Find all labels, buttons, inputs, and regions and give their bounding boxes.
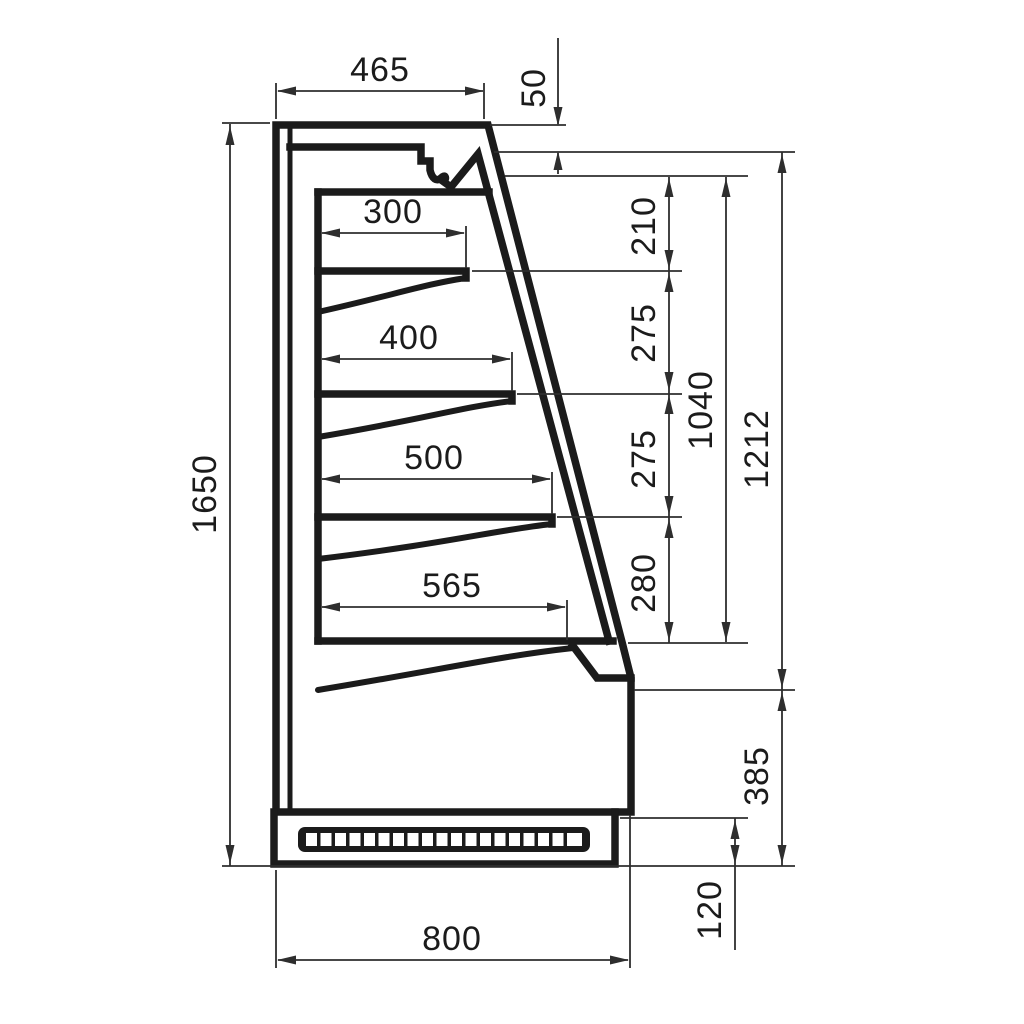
dim-spacing-3-label: 275 — [625, 429, 663, 489]
dim-base-shelf-label: 565 — [422, 567, 482, 605]
dim-shelf-1: 300 — [321, 193, 465, 238]
dim-total-height-label: 1650 — [186, 454, 224, 534]
dim-shelf-2-label: 400 — [379, 319, 439, 357]
dim-total-depth: 800 — [277, 920, 629, 965]
dim-opening-height: 1040 — [682, 177, 731, 642]
shelf-1 — [318, 271, 466, 278]
dim-total-depth-label: 800 — [422, 920, 482, 958]
dim-spacing-chain: 210 275 275 280 — [625, 177, 674, 643]
dim-front-label: 1212 — [738, 409, 776, 489]
dim-shelf-3: 500 — [321, 439, 551, 484]
shelf-3 — [318, 517, 552, 524]
dim-opening-label: 1040 — [682, 370, 720, 450]
dim-plinth-label: 120 — [691, 880, 729, 940]
dim-front-height: 1212 385 — [738, 152, 787, 866]
ventilation-grille — [298, 827, 590, 852]
dim-plinth-height: 120 — [691, 818, 740, 950]
dim-spacing-1-label: 210 — [625, 196, 663, 256]
shelf-3-underside — [318, 524, 552, 559]
cabinet-cross-section-drawing: 465 50 300 400 500 — [0, 0, 1024, 1024]
dim-shelf-2: 400 — [321, 319, 511, 364]
dim-spacing-2-label: 275 — [625, 303, 663, 363]
dim-shelf-1-label: 300 — [363, 193, 423, 231]
deck-underside — [318, 648, 573, 690]
technical-drawing-page: 465 50 300 400 500 — [0, 0, 1024, 1024]
dim-shelf-3-label: 500 — [404, 439, 464, 477]
dim-lower-front-label: 385 — [738, 746, 776, 806]
dim-total-height: 1650 — [186, 124, 235, 866]
shelf-1-underside — [318, 278, 466, 312]
dim-spacing-4-label: 280 — [625, 553, 663, 613]
dim-canopy-label: 50 — [515, 68, 553, 108]
dim-top-depth: 465 — [277, 51, 484, 96]
shelf-2 — [318, 394, 512, 401]
dim-top-depth-label: 465 — [350, 51, 410, 89]
dim-base-shelf: 565 — [321, 567, 566, 612]
dim-canopy-height: 50 — [515, 38, 563, 174]
shelf-2-underside — [318, 401, 512, 437]
